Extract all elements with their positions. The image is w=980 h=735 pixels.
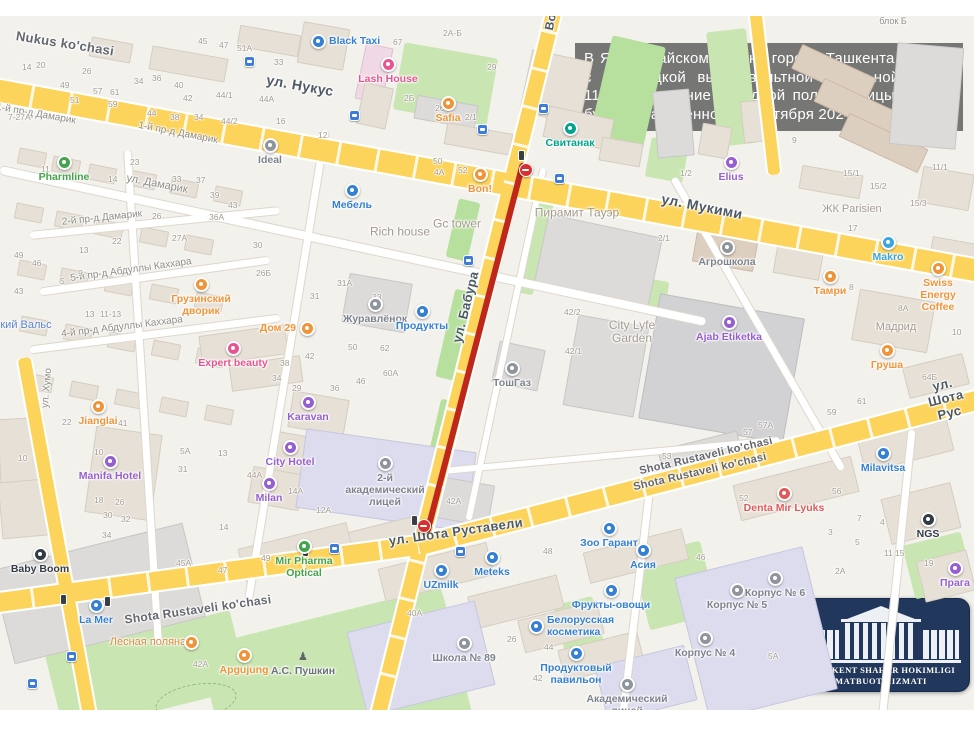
house-number: 10 bbox=[18, 453, 27, 463]
house-number: 4 bbox=[880, 517, 885, 527]
house-number: 12 bbox=[318, 130, 327, 140]
house-number: 15/1 bbox=[843, 168, 860, 178]
house-number: 22 bbox=[112, 236, 121, 246]
screenshot-root: Nukus ko'chasiул. Нукусул. Мукимиул. Баб… bbox=[0, 0, 980, 735]
poi-glyph-icon bbox=[641, 548, 645, 552]
poi-glyph-icon bbox=[108, 459, 112, 463]
house-number: 44/2 bbox=[221, 116, 238, 126]
house-number: 50 bbox=[348, 342, 357, 352]
house-number: 7 bbox=[857, 513, 862, 523]
poi-marker[interactable] bbox=[602, 521, 617, 536]
poi-marker[interactable] bbox=[636, 543, 651, 558]
house-number: 34 bbox=[102, 530, 111, 540]
monument-icon: ♟ bbox=[298, 650, 308, 663]
house-number: 5А bbox=[180, 446, 190, 456]
building bbox=[139, 226, 170, 247]
poi-glyph-icon bbox=[316, 39, 320, 43]
house-number: 11 bbox=[884, 548, 893, 558]
house-number: 11-13 bbox=[100, 309, 121, 319]
bus-stop-icon[interactable] bbox=[27, 678, 38, 689]
poi-marker[interactable] bbox=[505, 361, 520, 376]
house-number: 1/2 bbox=[680, 168, 692, 178]
poi-marker[interactable] bbox=[529, 619, 544, 634]
house-number: 7-27А bbox=[8, 112, 31, 122]
poi-glyph-icon bbox=[881, 451, 885, 455]
street-label: Мадрид bbox=[876, 321, 917, 333]
poi-marker[interactable] bbox=[378, 456, 393, 471]
street-label: Gc tower bbox=[433, 217, 481, 230]
house-number: 42 bbox=[305, 351, 314, 361]
street-label: Rich house bbox=[370, 225, 430, 238]
house-number: 42/1 bbox=[565, 346, 582, 356]
poi-glyph-icon bbox=[439, 568, 443, 572]
poi-marker[interactable] bbox=[311, 34, 326, 49]
poi-label: Safia bbox=[435, 112, 460, 124]
poi-label: Meteks bbox=[474, 566, 510, 578]
poi-marker[interactable] bbox=[698, 631, 713, 646]
house-number: 30 bbox=[103, 510, 112, 520]
building bbox=[184, 234, 215, 255]
house-number: 49 bbox=[261, 553, 270, 563]
poi-marker[interactable] bbox=[457, 636, 472, 651]
poi-glyph-icon bbox=[189, 640, 193, 644]
house-number: 9 bbox=[792, 135, 797, 145]
poi-label: Pharmline bbox=[39, 171, 90, 183]
house-number: 60А bbox=[383, 368, 398, 378]
house-number: 44А bbox=[259, 94, 274, 104]
house-number: 13 bbox=[85, 309, 94, 319]
house-number: 50 bbox=[433, 156, 442, 166]
house-number: 23 bbox=[130, 157, 139, 167]
house-number: 14 bbox=[22, 62, 31, 72]
house-number: 46 bbox=[32, 258, 41, 268]
house-number: 2/1 bbox=[465, 112, 477, 122]
poi-glyph-icon bbox=[267, 481, 271, 485]
house-number: 42А bbox=[446, 496, 461, 506]
poi-glyph-icon bbox=[886, 240, 890, 244]
house-number: 13 bbox=[218, 448, 227, 458]
house-number: 64Б bbox=[922, 372, 937, 382]
poi-label: Elius bbox=[718, 171, 743, 183]
house-number: 46 bbox=[696, 552, 705, 562]
poi-glyph-icon bbox=[490, 555, 494, 559]
poi-marker[interactable] bbox=[876, 446, 891, 461]
bus-stop-icon[interactable] bbox=[538, 103, 549, 114]
poi-marker[interactable] bbox=[33, 547, 48, 562]
house-number: 30 bbox=[253, 240, 262, 250]
house-number: 2/1 bbox=[658, 233, 670, 243]
house-number: 48 bbox=[543, 546, 552, 556]
house-number: 29 bbox=[292, 383, 301, 393]
poi-glyph-icon bbox=[420, 309, 424, 313]
poi-glyph-icon bbox=[302, 544, 306, 548]
poi-marker[interactable] bbox=[921, 512, 936, 527]
logo-building-right-wing-icon bbox=[923, 630, 959, 659]
poi-label: Swiss Energy Coffee bbox=[920, 277, 956, 313]
house-number: 31А bbox=[337, 278, 352, 288]
poi-marker[interactable] bbox=[569, 646, 584, 661]
building bbox=[889, 42, 965, 149]
poi-label: Bon! bbox=[468, 183, 492, 195]
poi-marker[interactable] bbox=[237, 648, 252, 663]
house-number: 26 bbox=[82, 66, 91, 76]
building bbox=[151, 339, 182, 360]
poi-glyph-icon bbox=[953, 566, 957, 570]
poi-marker[interactable] bbox=[722, 315, 737, 330]
street-label: блок Б bbox=[879, 17, 906, 27]
poi-marker[interactable] bbox=[89, 598, 104, 613]
poi-label: Lash House bbox=[358, 73, 418, 85]
house-number: 36 bbox=[152, 73, 161, 83]
house-number: 57А bbox=[758, 420, 773, 430]
street-label: ул. Хумо bbox=[40, 368, 54, 409]
poi-label: Зоо Гарант bbox=[580, 537, 638, 549]
poi-marker[interactable] bbox=[730, 583, 745, 598]
house-number: 36 bbox=[330, 383, 339, 393]
house-number: 41 bbox=[118, 418, 127, 428]
house-number: 40 bbox=[174, 80, 183, 90]
poi-glyph-icon bbox=[288, 445, 292, 449]
house-number: 27А bbox=[172, 233, 187, 243]
poi-label: Продуктовый павильон bbox=[540, 662, 611, 686]
house-number: 52 bbox=[458, 165, 467, 175]
house-number: 38 bbox=[280, 358, 289, 368]
house-number: 9 bbox=[78, 268, 83, 278]
house-number: 14 bbox=[108, 174, 117, 184]
house-number: 40А bbox=[407, 608, 422, 618]
poi-glyph-icon bbox=[773, 576, 777, 580]
poi-marker[interactable] bbox=[300, 321, 315, 336]
poi-label: NGS bbox=[917, 528, 940, 540]
poi-label: А.С. Пушкин bbox=[271, 665, 335, 677]
poi-marker[interactable] bbox=[262, 476, 277, 491]
poi-label: 2-й академический лицей bbox=[345, 472, 424, 508]
poi-label: Milan bbox=[256, 492, 283, 504]
poi-marker[interactable] bbox=[777, 486, 792, 501]
house-number: 11/1 bbox=[932, 162, 948, 172]
poi-glyph-icon bbox=[828, 274, 832, 278]
poi-glyph-icon bbox=[607, 526, 611, 530]
poi-glyph-icon bbox=[199, 282, 203, 286]
poi-glyph-icon bbox=[373, 302, 377, 306]
street-label: ЖК Parisien bbox=[822, 203, 881, 215]
house-number: 2А bbox=[835, 566, 845, 576]
house-number: 14 bbox=[219, 522, 228, 532]
house-number: 49 bbox=[60, 80, 69, 90]
house-number: 36А bbox=[209, 212, 224, 222]
house-number: 38 bbox=[170, 112, 179, 122]
poi-glyph-icon bbox=[62, 160, 66, 164]
poi-marker[interactable] bbox=[720, 240, 735, 255]
house-number: 51А bbox=[237, 43, 252, 53]
poi-label: Фрукты-овощи bbox=[572, 599, 650, 611]
house-number: 29 bbox=[487, 62, 496, 72]
house-number: 37 bbox=[196, 175, 205, 185]
bus-stop-icon[interactable] bbox=[455, 546, 466, 557]
poi-label: Корпус № 6 bbox=[745, 587, 805, 599]
poi-marker[interactable] bbox=[103, 454, 118, 469]
poi-marker[interactable] bbox=[91, 399, 106, 414]
house-number: 57 bbox=[743, 427, 752, 437]
house-number: 26 bbox=[115, 497, 124, 507]
bus-stop-icon[interactable] bbox=[66, 651, 77, 662]
poi-glyph-icon bbox=[268, 143, 272, 147]
street-label: Пирамит Тауэр bbox=[535, 206, 619, 219]
building bbox=[159, 396, 190, 417]
house-number: 56 bbox=[832, 486, 841, 496]
house-number: 42/2 bbox=[564, 307, 581, 317]
house-number: 15/2 bbox=[870, 181, 887, 191]
bus-stop-icon[interactable] bbox=[554, 173, 565, 184]
poi-label: Грузинский дворик bbox=[171, 293, 231, 317]
house-number: 22 bbox=[62, 417, 71, 427]
poi-glyph-icon bbox=[478, 172, 482, 176]
poi-marker[interactable] bbox=[368, 297, 383, 312]
poi-label: Школа № 89 bbox=[432, 652, 496, 664]
logo-building-roof-icon bbox=[841, 619, 921, 622]
house-number: 10 bbox=[952, 327, 961, 337]
bus-stop-icon[interactable] bbox=[244, 56, 255, 67]
street-label: Лесная поляна bbox=[110, 636, 186, 648]
poi-glyph-icon bbox=[305, 326, 309, 330]
house-number: 45 bbox=[198, 36, 207, 46]
house-number: 13 bbox=[79, 245, 88, 255]
poi-glyph-icon bbox=[729, 160, 733, 164]
house-number: 47 bbox=[219, 40, 228, 50]
poi-label: Груша bbox=[871, 359, 903, 371]
poi-glyph-icon bbox=[38, 552, 42, 556]
house-number: 61 bbox=[857, 396, 866, 406]
poi-label: Дом 29 bbox=[260, 322, 296, 334]
house-number: 57 bbox=[93, 86, 102, 96]
house-number: 5 bbox=[60, 276, 65, 286]
bus-stop-icon[interactable] bbox=[329, 543, 340, 554]
poi-glyph-icon bbox=[383, 461, 387, 465]
house-number: 15 bbox=[895, 548, 904, 558]
poi-label: UZmilk bbox=[423, 579, 458, 591]
poi-marker[interactable] bbox=[345, 183, 360, 198]
poi-label: Академический лицей bbox=[586, 693, 667, 710]
house-number: 39 bbox=[210, 190, 219, 200]
traffic-light-icon bbox=[518, 150, 525, 161]
poi-glyph-icon bbox=[609, 588, 613, 592]
poi-marker[interactable] bbox=[415, 304, 430, 319]
poi-marker[interactable] bbox=[724, 155, 739, 170]
house-number: 26 bbox=[507, 634, 516, 644]
house-number: 44/1 bbox=[216, 90, 233, 100]
house-number: 31 bbox=[310, 291, 319, 301]
poi-glyph-icon bbox=[446, 101, 450, 105]
poi-marker[interactable] bbox=[473, 167, 488, 182]
street-label: Nukus ko'chasi bbox=[15, 29, 115, 59]
house-number: 26Б bbox=[256, 268, 271, 278]
poi-marker[interactable] bbox=[301, 395, 316, 410]
poi-glyph-icon bbox=[625, 682, 629, 686]
house-number: 47 bbox=[218, 565, 227, 575]
house-number: 59 bbox=[827, 407, 836, 417]
house-number: 15/3 bbox=[910, 198, 927, 208]
house-number: 18 bbox=[94, 495, 103, 505]
house-number: 2Б bbox=[404, 93, 414, 103]
poi-label: Корпус № 4 bbox=[675, 647, 735, 659]
house-number: 10 bbox=[94, 447, 103, 457]
house-number: 19 bbox=[924, 558, 933, 568]
building bbox=[652, 89, 695, 159]
poi-marker[interactable] bbox=[283, 440, 298, 455]
building bbox=[14, 202, 45, 223]
poi-glyph-icon bbox=[703, 636, 707, 640]
poi-marker[interactable] bbox=[881, 235, 896, 250]
poi-glyph-icon bbox=[885, 348, 889, 352]
building bbox=[697, 123, 732, 160]
house-number: 61 bbox=[110, 87, 119, 97]
poi-glyph-icon bbox=[231, 346, 235, 350]
poi-label: Мебель bbox=[332, 199, 372, 211]
poi-label: Manifa Hotel bbox=[79, 470, 141, 482]
poi-glyph-icon bbox=[510, 366, 514, 370]
poi-marker[interactable] bbox=[381, 57, 396, 72]
house-number: 46 bbox=[356, 376, 365, 386]
poi-label: Mir Pharma Optical bbox=[275, 555, 332, 579]
house-number: 14А bbox=[288, 486, 303, 496]
poi-glyph-icon bbox=[936, 266, 940, 270]
poi-glyph-icon bbox=[574, 651, 578, 655]
poi-marker[interactable] bbox=[263, 138, 278, 153]
poi-marker[interactable] bbox=[184, 635, 199, 650]
poi-glyph-icon bbox=[735, 588, 739, 592]
house-number: 26 bbox=[152, 211, 161, 221]
house-number: 34 bbox=[134, 76, 143, 86]
house-number: 67 bbox=[393, 37, 402, 47]
house-number: 53 bbox=[662, 451, 671, 461]
poi-label: Ajab Etiketka bbox=[696, 331, 762, 343]
house-number: 44 bbox=[544, 642, 553, 652]
no-entry-sign-icon bbox=[519, 163, 533, 177]
poi-label: Ideal bbox=[258, 154, 282, 166]
house-number: 33 bbox=[274, 57, 283, 67]
house-number: 4А bbox=[434, 167, 444, 177]
poi-marker[interactable] bbox=[620, 677, 635, 692]
poi-marker[interactable] bbox=[226, 341, 241, 356]
house-number: 42А bbox=[193, 659, 208, 669]
house-number: 49 bbox=[14, 250, 23, 260]
poi-label: ТошГаз bbox=[493, 377, 531, 389]
poi-marker[interactable] bbox=[485, 550, 500, 565]
poi-label: Makro bbox=[873, 251, 904, 263]
house-number: 33 bbox=[172, 174, 181, 184]
poi-label: Тамри bbox=[814, 285, 847, 297]
poi-marker[interactable] bbox=[563, 121, 578, 136]
poi-marker[interactable] bbox=[441, 96, 456, 111]
poi-marker[interactable] bbox=[57, 155, 72, 170]
logo-building-colonnade-icon bbox=[845, 623, 917, 659]
poi-label: Свитанак bbox=[546, 137, 595, 149]
poi-glyph-icon bbox=[568, 126, 572, 130]
poi-glyph-icon bbox=[242, 653, 246, 657]
house-number: 43 bbox=[228, 200, 237, 210]
bus-stop-icon[interactable] bbox=[463, 255, 474, 266]
building bbox=[204, 404, 235, 425]
bus-stop-icon[interactable] bbox=[349, 110, 360, 121]
poi-glyph-icon bbox=[350, 188, 354, 192]
poi-label: Белорусская косметика bbox=[547, 614, 614, 638]
poi-marker[interactable] bbox=[297, 539, 312, 554]
poi-label: Expert beauty bbox=[198, 357, 267, 369]
poi-marker[interactable] bbox=[931, 261, 946, 276]
poi-label: Асия bbox=[630, 559, 656, 571]
poi-glyph-icon bbox=[94, 603, 98, 607]
poi-label: Агрошкола bbox=[698, 256, 755, 268]
house-number: 3 bbox=[828, 527, 833, 537]
street-label: ул. Нукус bbox=[265, 73, 335, 100]
poi-label: Jianglai bbox=[78, 415, 117, 427]
house-number: 44 bbox=[147, 108, 156, 118]
poi-glyph-icon bbox=[462, 641, 466, 645]
poi-glyph-icon bbox=[782, 491, 786, 495]
house-number: 5А bbox=[768, 651, 778, 661]
poi-glyph-icon bbox=[386, 62, 390, 66]
house-number: 59 bbox=[108, 99, 117, 109]
poi-label: City Hotel bbox=[265, 456, 314, 468]
house-number: 51 bbox=[70, 95, 79, 105]
poi-marker[interactable] bbox=[768, 571, 783, 586]
poi-marker[interactable] bbox=[604, 583, 619, 598]
poi-label: Denta Mir Lyuks bbox=[744, 502, 825, 514]
poi-label: Milavitsa bbox=[861, 462, 905, 474]
poi-glyph-icon bbox=[727, 320, 731, 324]
poi-glyph-icon bbox=[725, 245, 729, 249]
poi-label: Корпус № 5 bbox=[707, 599, 767, 611]
logo-building-pediment-icon bbox=[847, 606, 915, 619]
poi-marker[interactable] bbox=[880, 343, 895, 358]
poi-label: Baby Boom bbox=[11, 563, 69, 575]
poi-marker[interactable] bbox=[434, 563, 449, 578]
poi-label: Продукты bbox=[396, 320, 448, 332]
poi-marker[interactable] bbox=[823, 269, 838, 284]
poi-glyph-icon bbox=[534, 624, 538, 628]
poi-marker[interactable] bbox=[194, 277, 209, 292]
house-number: 17 bbox=[848, 223, 857, 233]
street-label: City Lyfe Garden bbox=[609, 319, 655, 345]
traffic-light-icon bbox=[60, 594, 67, 605]
poi-label: Karavan bbox=[287, 411, 328, 423]
house-number: 42 bbox=[183, 93, 192, 103]
house-number: 45А bbox=[176, 558, 191, 568]
house-number: 5 bbox=[855, 537, 860, 547]
poi-glyph-icon bbox=[96, 404, 100, 408]
poi-label: Black Taxi bbox=[329, 35, 380, 47]
house-number: 12А bbox=[316, 505, 331, 515]
building bbox=[69, 380, 100, 401]
bus-stop-icon[interactable] bbox=[477, 124, 488, 135]
poi-label: Apgujung bbox=[220, 664, 269, 676]
street-label: кий Вальс bbox=[0, 319, 51, 331]
poi-label: La Mer bbox=[79, 614, 113, 626]
poi-glyph-icon bbox=[306, 400, 310, 404]
house-number: 31 bbox=[178, 464, 187, 474]
house-number: 34 bbox=[272, 373, 281, 383]
house-number: 43 bbox=[14, 286, 23, 296]
no-entry-sign-icon bbox=[417, 519, 431, 533]
house-number: 32 bbox=[121, 514, 130, 524]
house-number: 20 bbox=[36, 60, 45, 70]
poi-label: Прага bbox=[940, 577, 970, 589]
house-number: 62 bbox=[380, 343, 389, 353]
house-number: 8А bbox=[898, 303, 908, 313]
poi-glyph-icon bbox=[926, 517, 930, 521]
house-number: 8 bbox=[849, 282, 854, 292]
poi-marker[interactable] bbox=[948, 561, 963, 576]
